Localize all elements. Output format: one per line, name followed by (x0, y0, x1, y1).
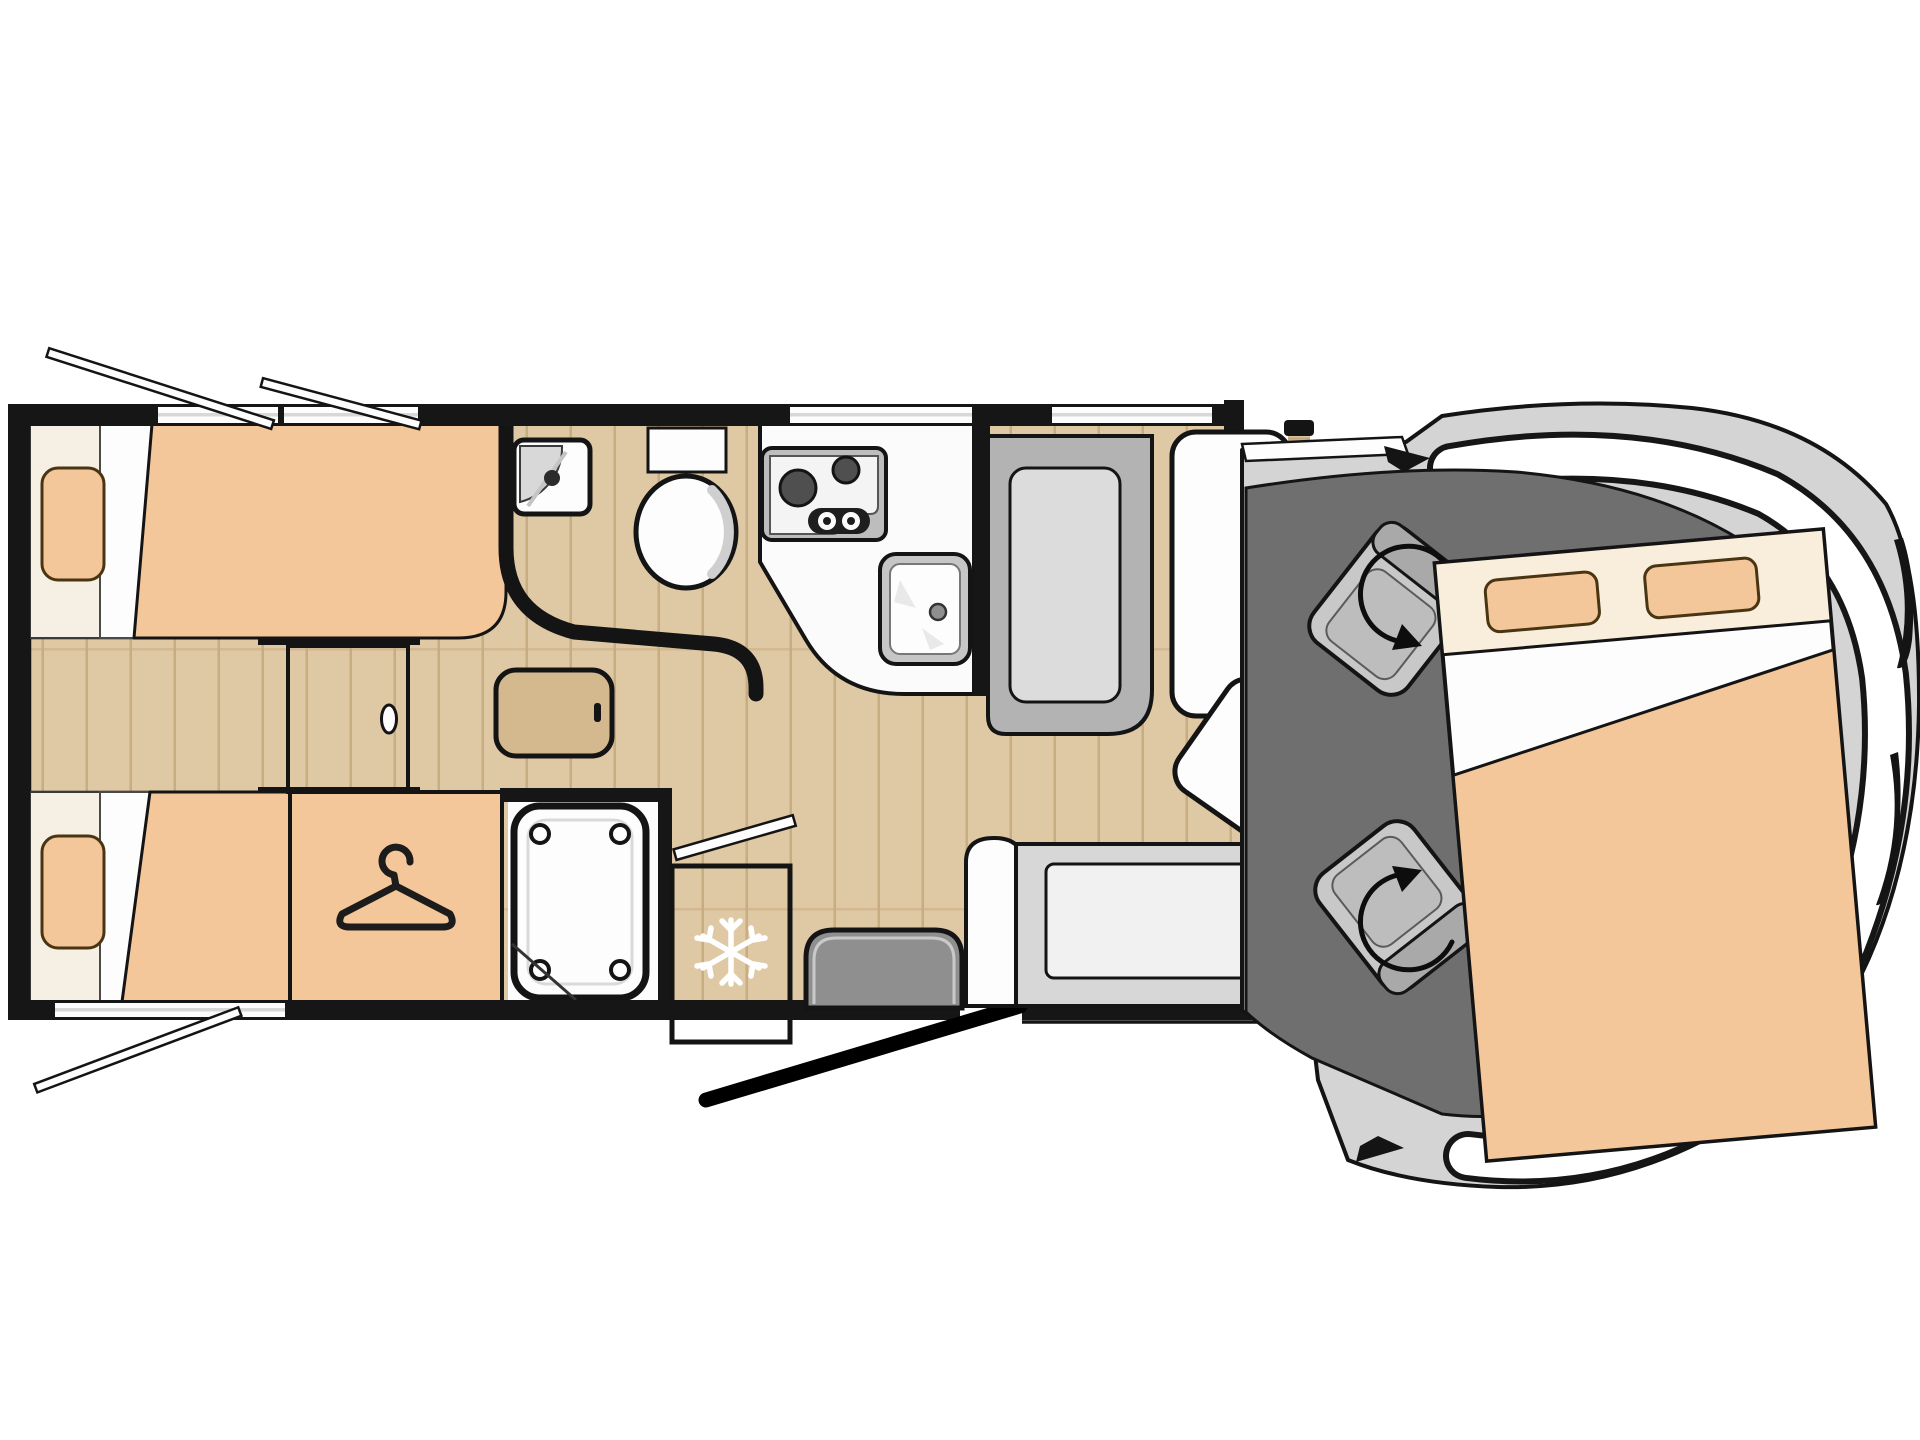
bed-duvet (134, 424, 506, 638)
rear-single-bed-bottom (30, 792, 290, 1002)
bed-duvet (122, 792, 290, 1002)
corner-basin (514, 440, 590, 514)
wardrobe (290, 792, 502, 1002)
basin-drain (544, 470, 560, 486)
wall-cap (1284, 420, 1314, 436)
bedside-table (496, 670, 612, 756)
tray-corner-bolt (611, 825, 629, 843)
bed-pillow (1644, 557, 1760, 619)
bed-pillow (1484, 571, 1600, 633)
tray-corner-bolt (531, 825, 549, 843)
sofa-armrest (966, 838, 1022, 1006)
hob (762, 448, 886, 540)
motorhome-floorplan (0, 0, 1920, 1440)
sink-faucet (930, 604, 946, 620)
shower-cabin (500, 788, 672, 1004)
tray-corner-bolt (611, 961, 629, 979)
floorplan-canvas (0, 0, 1920, 1440)
kitchen-dinette-divider (974, 424, 990, 696)
burner-small (833, 457, 859, 483)
table-handle (594, 703, 601, 722)
bed-pillow (42, 468, 104, 580)
drop-down-bed (1435, 529, 1876, 1161)
toilet-cistern (648, 428, 726, 472)
wardrobe-cabinet (290, 792, 502, 1002)
kitchen-sink (880, 554, 970, 664)
wall-end-cap (1224, 400, 1244, 430)
hob-controls (808, 508, 870, 534)
toilet (636, 428, 736, 588)
sink-bowl (890, 564, 960, 654)
door-handle (382, 705, 397, 733)
sofa-cushion (1046, 864, 1274, 978)
entry-seat (806, 930, 962, 1008)
bed-pillow (42, 836, 104, 948)
rear-single-bed-top (30, 424, 506, 638)
entry-door-open (706, 1006, 1020, 1100)
open-window-stay (34, 1007, 241, 1092)
shower-wall-top (500, 788, 672, 802)
dinette-bench-cushion (1010, 468, 1120, 702)
burner-large (780, 470, 816, 506)
wall-rear (8, 404, 30, 1020)
